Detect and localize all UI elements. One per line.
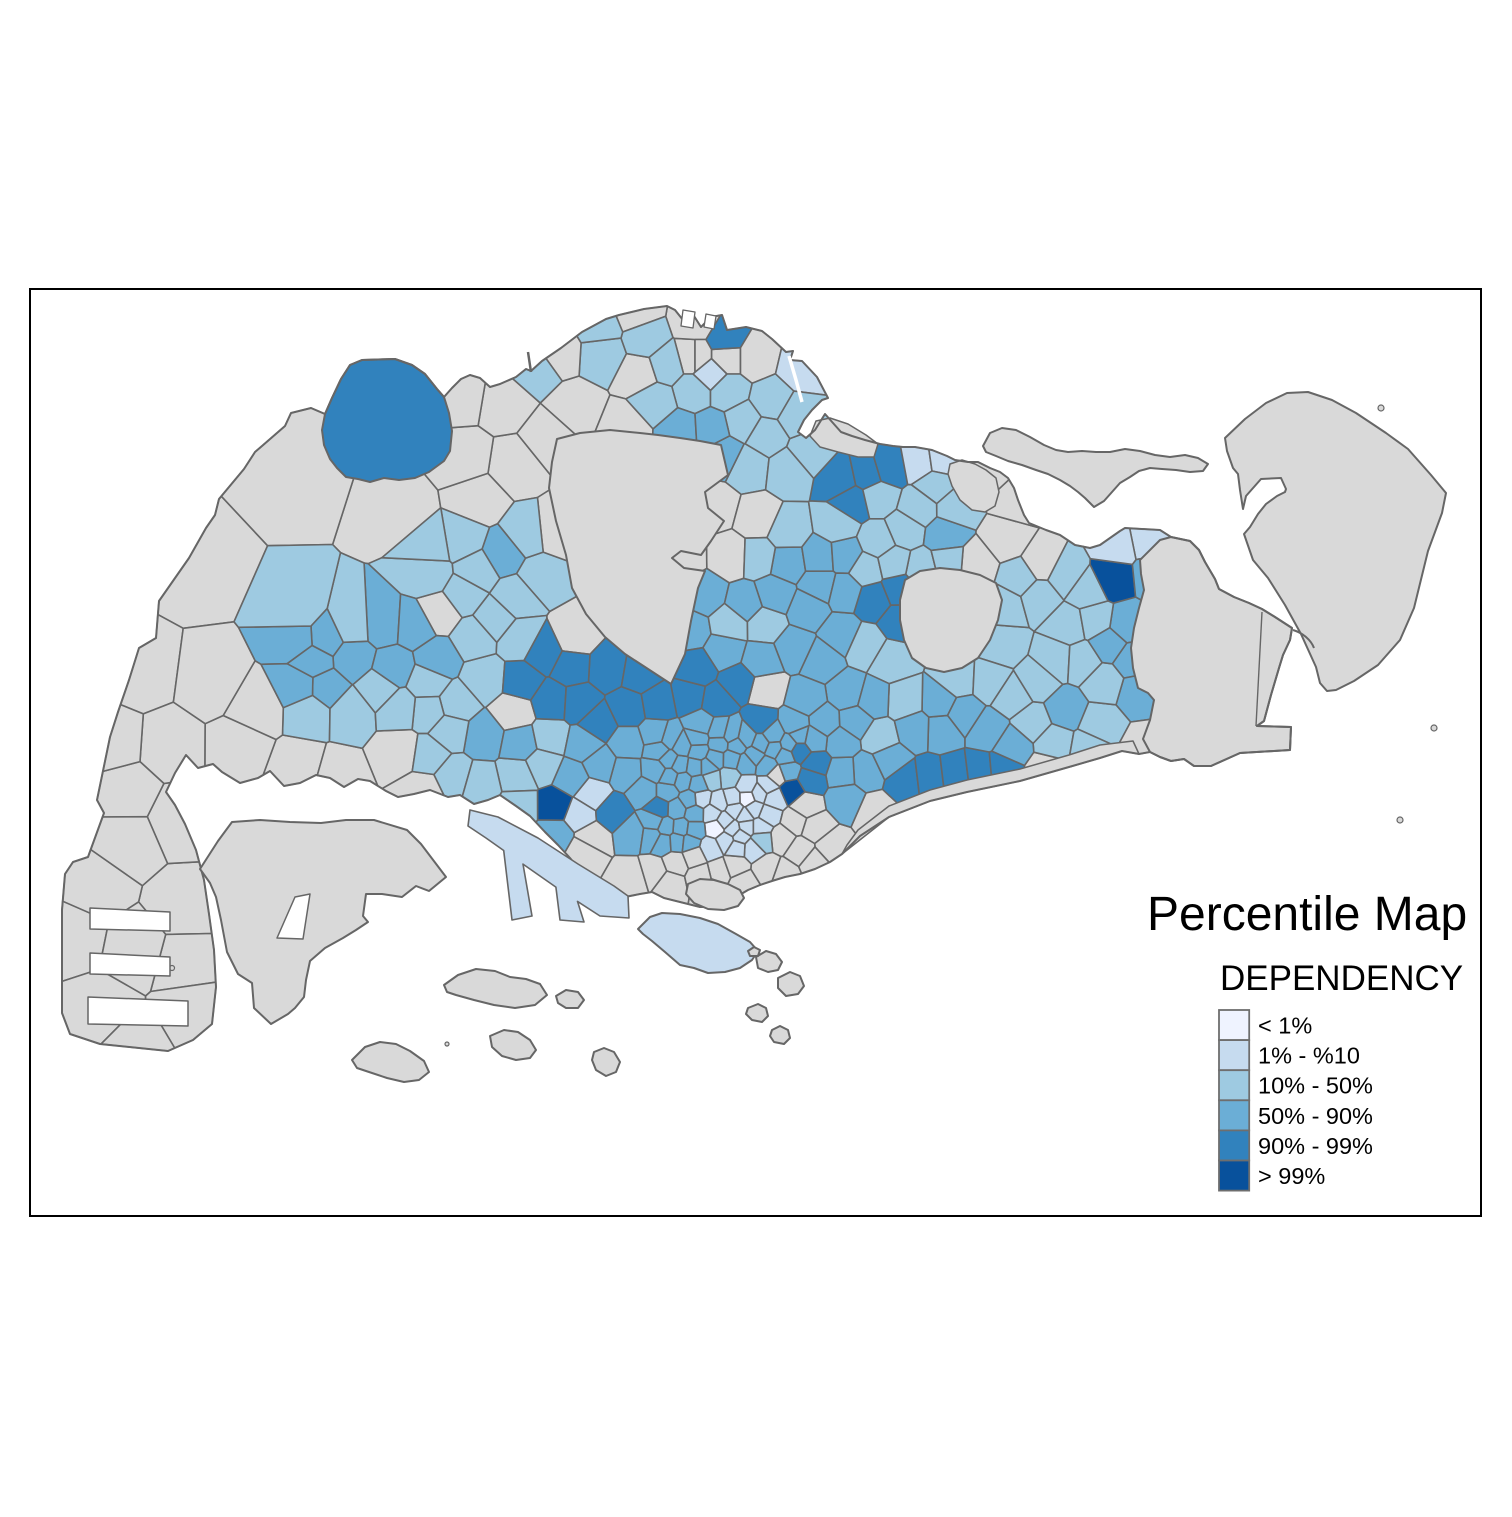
svg-text:DEPENDENCY: DEPENDENCY (1220, 959, 1463, 998)
svg-text:10% - 50%: 10% - 50% (1258, 1073, 1373, 1099)
svg-text:Percentile Map: Percentile Map (1147, 888, 1467, 941)
svg-text:< 1%: < 1% (1258, 1013, 1312, 1039)
svg-text:> 99%: > 99% (1258, 1163, 1325, 1189)
svg-text:50% - 90%: 50% - 90% (1258, 1103, 1373, 1129)
svg-text:1% - %10: 1% - %10 (1258, 1043, 1360, 1069)
svg-text:90% - 99%: 90% - 99% (1258, 1133, 1373, 1159)
